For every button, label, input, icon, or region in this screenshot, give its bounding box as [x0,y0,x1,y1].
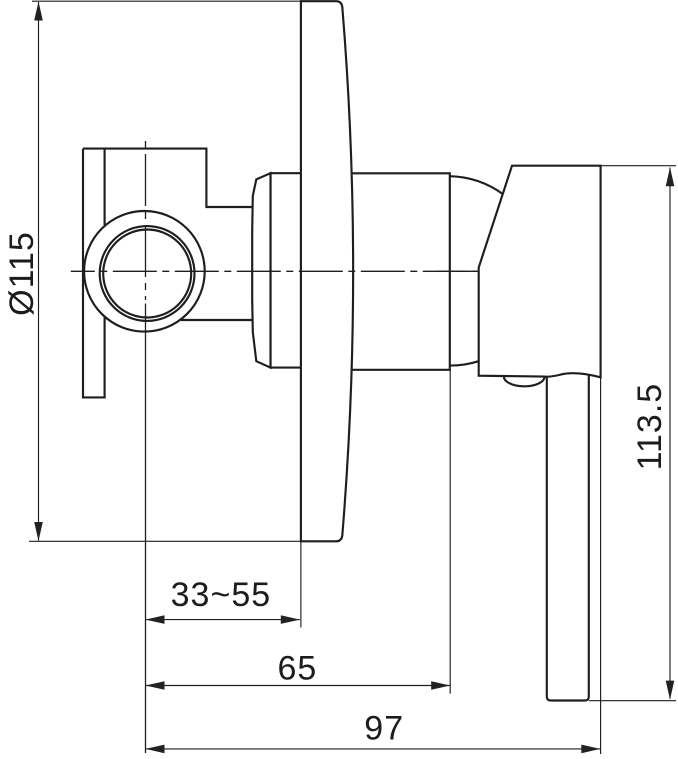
svg-text:113.5: 113.5 [631,383,669,471]
svg-text:33~55: 33~55 [171,576,272,614]
svg-text:65: 65 [277,650,317,688]
svg-text:Ø115: Ø115 [3,231,41,316]
svg-text:97: 97 [364,710,404,748]
